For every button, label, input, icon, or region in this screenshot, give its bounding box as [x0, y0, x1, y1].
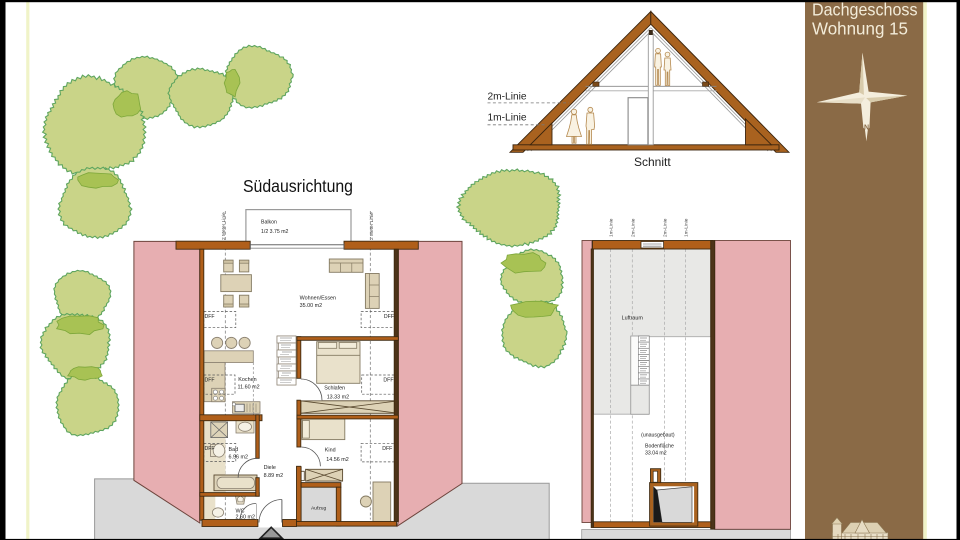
svg-text:Bodenfläche: Bodenfläche — [645, 444, 674, 450]
svg-text:1m-Linie: 1m-Linie — [609, 218, 615, 237]
svg-text:2 Meter Linie: 2 Meter Linie — [221, 212, 227, 240]
svg-text:14.56 m2: 14.56 m2 — [326, 457, 348, 463]
svg-text:35.00 m2: 35.00 m2 — [300, 303, 322, 309]
svg-text:Schlafen: Schlafen — [324, 386, 345, 392]
svg-text:2m-Linie: 2m-Linie — [662, 218, 668, 237]
svg-text:Diele: Diele — [264, 465, 276, 471]
svg-text:2m-Linie: 2m-Linie — [488, 92, 527, 103]
svg-text:Wohnung 15: Wohnung 15 — [812, 19, 908, 39]
svg-text:Wohnen/Essen: Wohnen/Essen — [300, 296, 336, 302]
svg-text:13.33 m2: 13.33 m2 — [327, 395, 349, 401]
svg-text:1/2 3.75 m2: 1/2 3.75 m2 — [261, 229, 289, 235]
svg-text:Aufzug: Aufzug — [311, 506, 327, 512]
svg-text:1m-Linie: 1m-Linie — [684, 218, 690, 237]
svg-text:11.60 m2: 11.60 m2 — [238, 384, 260, 390]
svg-text:DFF: DFF — [205, 314, 215, 320]
svg-text:DFF: DFF — [382, 446, 392, 452]
svg-text:(unausgebaut): (unausgebaut) — [641, 433, 675, 439]
svg-text:2m-Linie: 2m-Linie — [630, 218, 636, 237]
svg-text:Balkon: Balkon — [261, 220, 277, 226]
svg-text:Dachgeschoss: Dachgeschoss — [812, 0, 918, 20]
svg-text:DFF: DFF — [205, 446, 215, 452]
svg-text:Kochen: Kochen — [238, 377, 256, 383]
svg-text:33.04 m2: 33.04 m2 — [645, 451, 667, 457]
svg-text:N: N — [864, 125, 869, 132]
svg-text:Kind: Kind — [325, 448, 336, 454]
svg-text:DFF: DFF — [205, 378, 215, 384]
svg-text:6.96 m2: 6.96 m2 — [229, 455, 248, 461]
svg-text:1m-Linie: 1m-Linie — [488, 113, 527, 124]
svg-text:DFF: DFF — [383, 378, 393, 384]
svg-text:Schnitt: Schnitt — [634, 155, 671, 169]
svg-text:Südausrichtung: Südausrichtung — [243, 176, 353, 196]
svg-text:DFF: DFF — [384, 314, 394, 320]
svg-text:8.89 m2: 8.89 m2 — [264, 473, 283, 479]
svg-text:2 Meter Linie: 2 Meter Linie — [369, 212, 375, 240]
svg-text:Bad: Bad — [229, 447, 239, 453]
